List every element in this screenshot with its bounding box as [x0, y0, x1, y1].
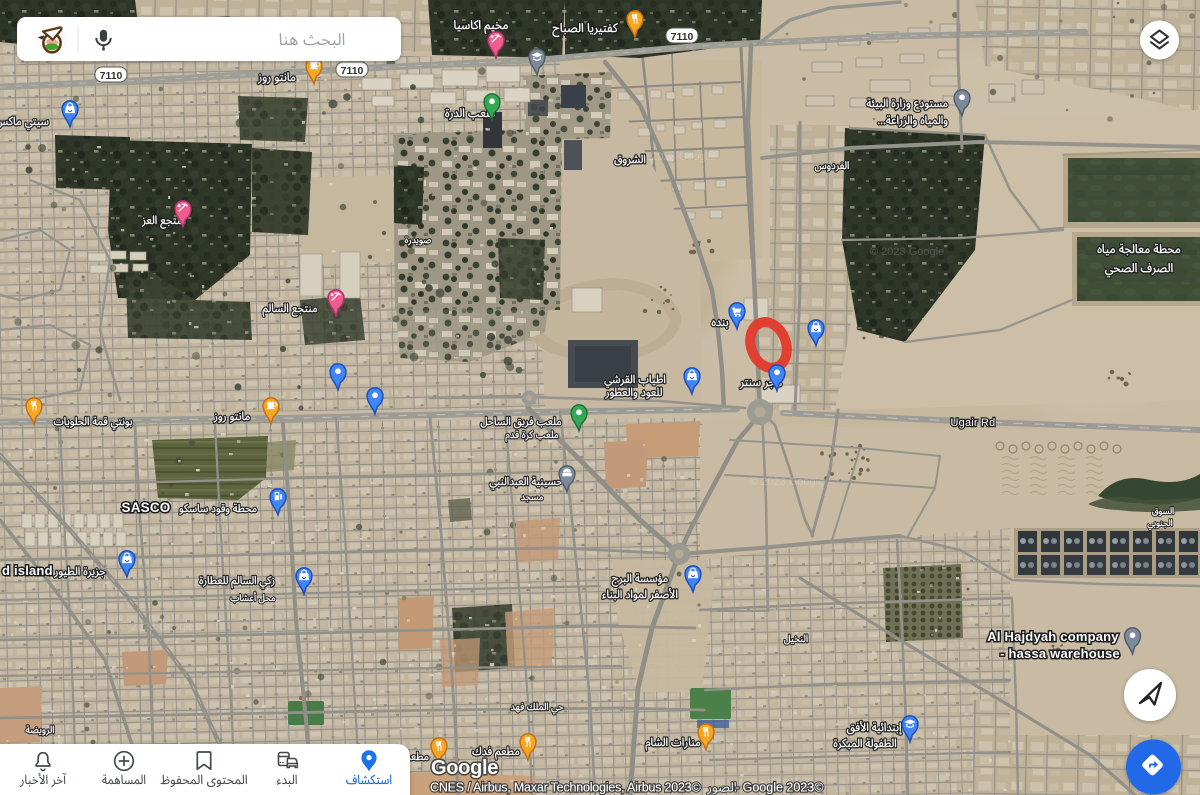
svg-text:Google: Google [431, 757, 498, 779]
svg-text:7110: 7110 [341, 65, 364, 77]
svg-text:Ugair Rd: Ugair Rd [950, 417, 995, 429]
svg-text:© 2023 Google: © 2023 Google [750, 476, 824, 488]
svg-text:© 2023 Google: © 2023 Google [640, 151, 714, 163]
svg-text:SASCO: SASCO [121, 500, 170, 515]
svg-text:© 2023 Google: © 2023 Google [870, 246, 944, 258]
svg-text:- Google 2023©: - Google 2023© [735, 781, 824, 795]
svg-text:© 2023 Google: © 2023 Google [120, 621, 194, 633]
svg-text:d island: d island [2, 563, 53, 578]
svg-text:7110: 7110 [100, 70, 123, 82]
svg-text:7110: 7110 [671, 31, 694, 43]
svg-text:- hassa warehouse: - hassa warehouse [1000, 646, 1120, 661]
svg-text:Al Hajdyah company: Al Hajdyah company [987, 629, 1119, 644]
svg-text:CNES / Airbus, Maxar Technolog: CNES / Airbus, Maxar Technologies, Airbu… [430, 781, 702, 795]
